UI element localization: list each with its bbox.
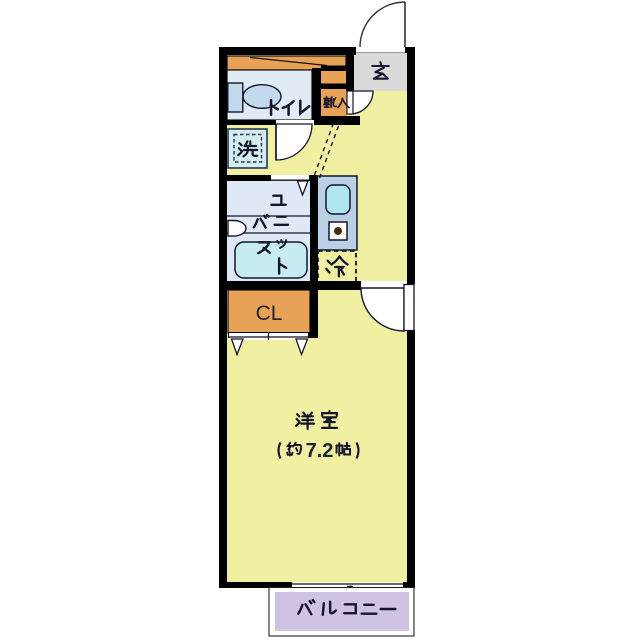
svg-text:7.2: 7.2 [306,440,334,462]
svg-text:CL: CL [256,302,283,325]
